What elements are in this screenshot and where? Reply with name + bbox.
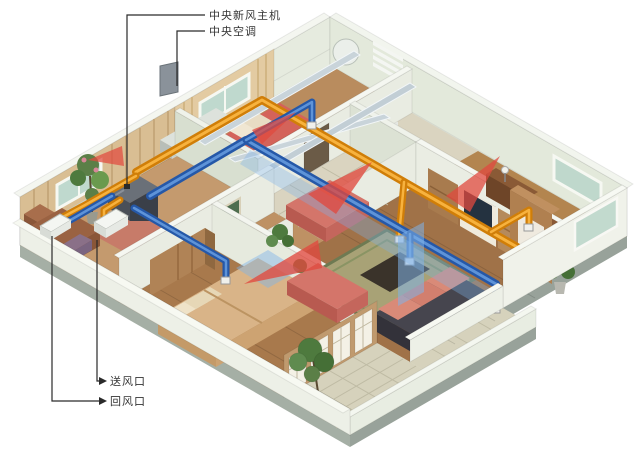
isometric-scene: 中央新风主机 中央空调 送风口 回风口 <box>0 0 640 456</box>
label-fresh-air-unit: 中央新风主机 <box>209 8 281 22</box>
label-central-ac: 中央空调 <box>209 24 257 38</box>
leader-central-ac <box>177 31 205 86</box>
hvac-cutaway-figure: 中央新风主机 中央空调 送风口 回风口 <box>0 0 640 456</box>
label-supply-outlet: 送风口 <box>110 374 146 388</box>
central-ac-unit <box>160 62 178 96</box>
label-return-outlet: 回风口 <box>110 395 146 408</box>
